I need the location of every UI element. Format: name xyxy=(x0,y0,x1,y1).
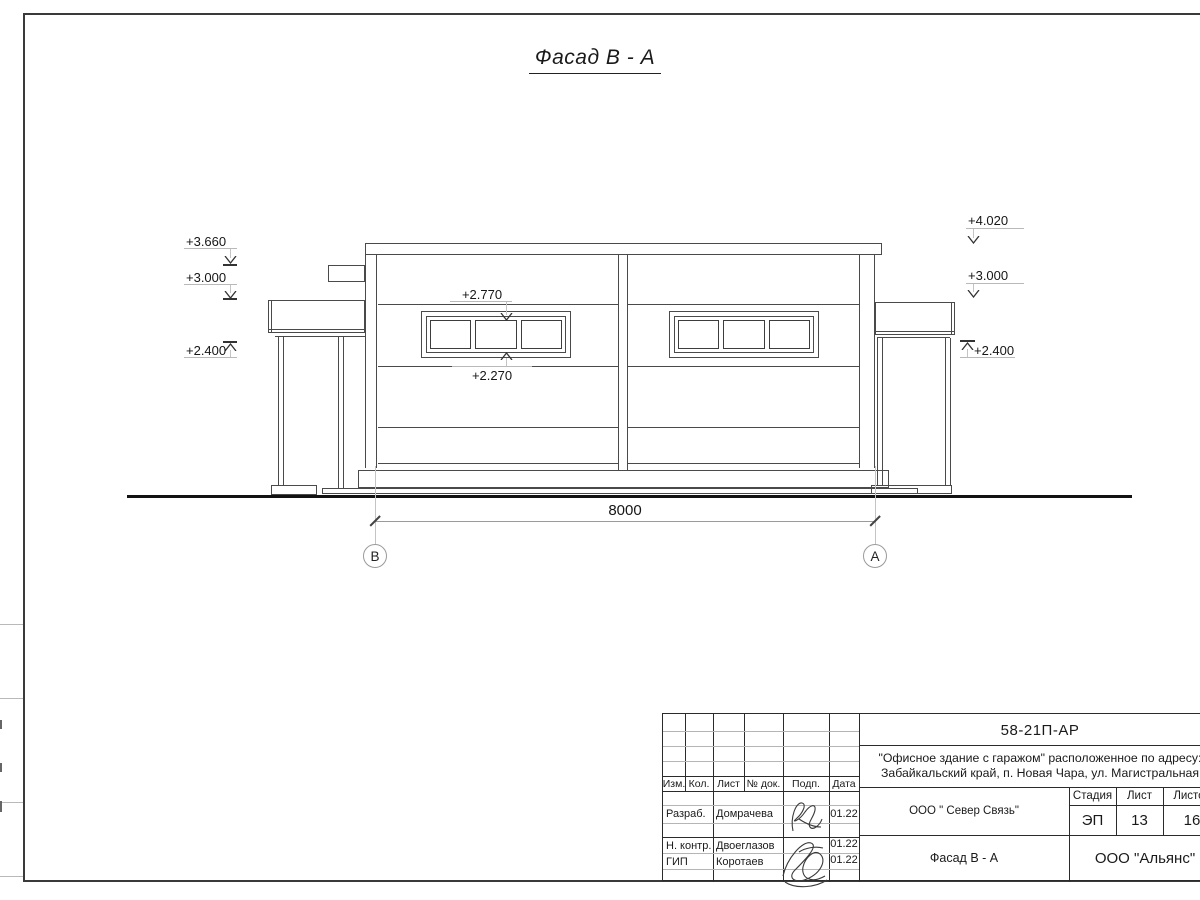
apron xyxy=(322,488,918,494)
axis-extension-line xyxy=(375,466,376,544)
elevation-label: +3.660 xyxy=(186,234,226,249)
tb-line xyxy=(713,714,714,882)
tb-line xyxy=(859,745,1200,746)
elevation-arrow-down-icon xyxy=(224,256,237,264)
side-stamp-line xyxy=(0,802,23,803)
elevation-leader xyxy=(967,349,968,357)
ground-line xyxy=(127,495,1132,498)
tb-header-ndok: № док. xyxy=(744,776,783,791)
drawing-sheet: Фасад В - А xyxy=(0,0,1200,900)
side-stamp-line xyxy=(0,698,23,699)
tb-stage-value: ЭП xyxy=(1069,808,1116,832)
pedestal-left xyxy=(271,485,317,495)
view-title: Фасад В - А xyxy=(395,46,795,74)
window-pane xyxy=(475,320,516,349)
canopy-left-edge-line xyxy=(271,300,272,333)
tb-date: 01.22 xyxy=(829,807,859,820)
signature xyxy=(775,834,835,890)
axis-bubble-left: В xyxy=(363,544,387,568)
siding-line xyxy=(628,463,859,464)
tb-role: Н. контр. xyxy=(666,839,716,852)
title-block: Изм. Кол. Лист № док. Подп. Дата Разраб.… xyxy=(662,713,1200,881)
tb-thin-line xyxy=(663,805,859,806)
elevation-label-window-bottom: +2.270 xyxy=(460,368,524,383)
siding-line xyxy=(378,463,618,464)
elevation-leader xyxy=(960,357,1015,358)
tb-header-kol: Кол. xyxy=(685,776,713,791)
window-pane xyxy=(678,320,719,349)
elevation-level-tick xyxy=(223,298,237,300)
siding-line xyxy=(628,304,859,305)
dimension-value: 8000 xyxy=(595,502,655,519)
frame-top xyxy=(23,13,1200,15)
wall-band-right xyxy=(859,255,875,468)
elevation-leader xyxy=(450,301,512,302)
tb-name: Двоеглазов xyxy=(716,839,784,852)
elevation-label: +2.400 xyxy=(186,343,226,358)
elevation-leader xyxy=(184,357,237,358)
tb-sheets-label: Листов xyxy=(1163,788,1200,804)
window-pane xyxy=(430,320,471,349)
wall-projection-box xyxy=(328,265,365,282)
canopy-right-edge-line xyxy=(951,302,952,335)
window-right-panes xyxy=(678,320,810,349)
axis-letter: В xyxy=(370,549,379,564)
axis-bubble-right: А xyxy=(863,544,887,568)
parapet xyxy=(365,243,882,255)
elevation-leader xyxy=(506,358,507,366)
window-left-panes xyxy=(430,320,562,349)
tb-header-list: Лист xyxy=(713,776,744,791)
tb-sheet-value: 13 xyxy=(1116,808,1163,832)
axis-letter: А xyxy=(870,549,879,564)
wall-band-left xyxy=(365,255,377,468)
siding-line xyxy=(628,427,859,428)
canopy-left-soffit xyxy=(275,336,365,337)
siding-line xyxy=(628,366,859,367)
tb-sheet-label: Лист xyxy=(1116,788,1163,804)
tb-stage-label: Стадия xyxy=(1069,788,1116,804)
tb-thin-line xyxy=(663,761,859,762)
side-stamp-text-stub xyxy=(0,720,2,729)
plinth xyxy=(358,470,889,488)
tb-role: ГИП xyxy=(666,855,712,868)
elevation-leader xyxy=(452,366,532,367)
side-stamp-text-stub xyxy=(0,763,2,772)
dimension-line xyxy=(375,521,876,522)
tb-project-line1: "Офисное здание с гаражом" расположенное… xyxy=(863,750,1200,766)
tb-client: ООО " Север Связь" xyxy=(859,803,1069,819)
tb-thin-line xyxy=(663,746,859,747)
tb-header-podp: Подп. xyxy=(783,776,829,791)
tb-thin-line xyxy=(663,731,859,732)
column xyxy=(945,338,951,486)
pedestal-right xyxy=(871,485,952,494)
canopy-left-fascia-line xyxy=(268,329,365,330)
elevation-leader xyxy=(966,283,1024,284)
elevation-label-window-top: +2.770 xyxy=(452,287,512,302)
elevation-leader xyxy=(230,350,231,357)
elevation-label: +3.000 xyxy=(186,270,226,285)
tb-line xyxy=(859,835,1200,836)
side-stamp-line xyxy=(0,624,23,625)
tb-role: Разраб. xyxy=(666,807,712,820)
window-pane xyxy=(769,320,810,349)
tb-thin-line xyxy=(663,823,859,824)
siding-line xyxy=(378,427,618,428)
tb-company: ООО "Альянс" xyxy=(1069,846,1200,870)
tb-project-line2: Забайкальский край, п. Новая Чара, ул. М… xyxy=(863,765,1200,781)
elevation-label: +4.020 xyxy=(968,213,1008,228)
tb-name: Домрачева xyxy=(716,807,782,820)
siding-line xyxy=(378,304,618,305)
tb-name: Коротаев xyxy=(716,855,782,868)
tb-sheets-value: 16 xyxy=(1163,808,1200,832)
side-stamp-line xyxy=(0,876,23,877)
tb-doc-code: 58-21П-АР xyxy=(859,718,1200,742)
canopy-right-soffit xyxy=(877,337,950,338)
signature xyxy=(783,797,829,837)
column xyxy=(877,338,883,486)
view-title-text: Фасад В - А xyxy=(529,46,661,74)
elevation-arrow-down-icon xyxy=(500,313,513,321)
side-stamp-text-stub xyxy=(0,801,2,812)
window-pane xyxy=(723,320,764,349)
tb-header-data: Дата xyxy=(829,776,859,791)
column xyxy=(278,336,284,486)
tb-line xyxy=(663,791,859,792)
elevation-arrow-down-icon xyxy=(967,236,980,244)
frame-left xyxy=(23,13,25,882)
elevation-label: +3.000 xyxy=(968,268,1008,283)
canopy-right-fascia-line xyxy=(875,331,955,332)
elevation-arrow-down-icon xyxy=(967,290,980,298)
elevation-leader xyxy=(966,228,1024,229)
tb-header-izm: Изм. xyxy=(663,776,685,791)
elevation-level-tick xyxy=(223,264,237,266)
wall-divider-center xyxy=(618,255,628,470)
window-pane xyxy=(521,320,562,349)
elevation-label: +2.400 xyxy=(974,343,1014,358)
column xyxy=(338,336,344,489)
tb-line xyxy=(1069,805,1200,806)
axis-extension-line xyxy=(875,466,876,544)
tb-drawing-name: Фасад В - А xyxy=(859,846,1069,870)
